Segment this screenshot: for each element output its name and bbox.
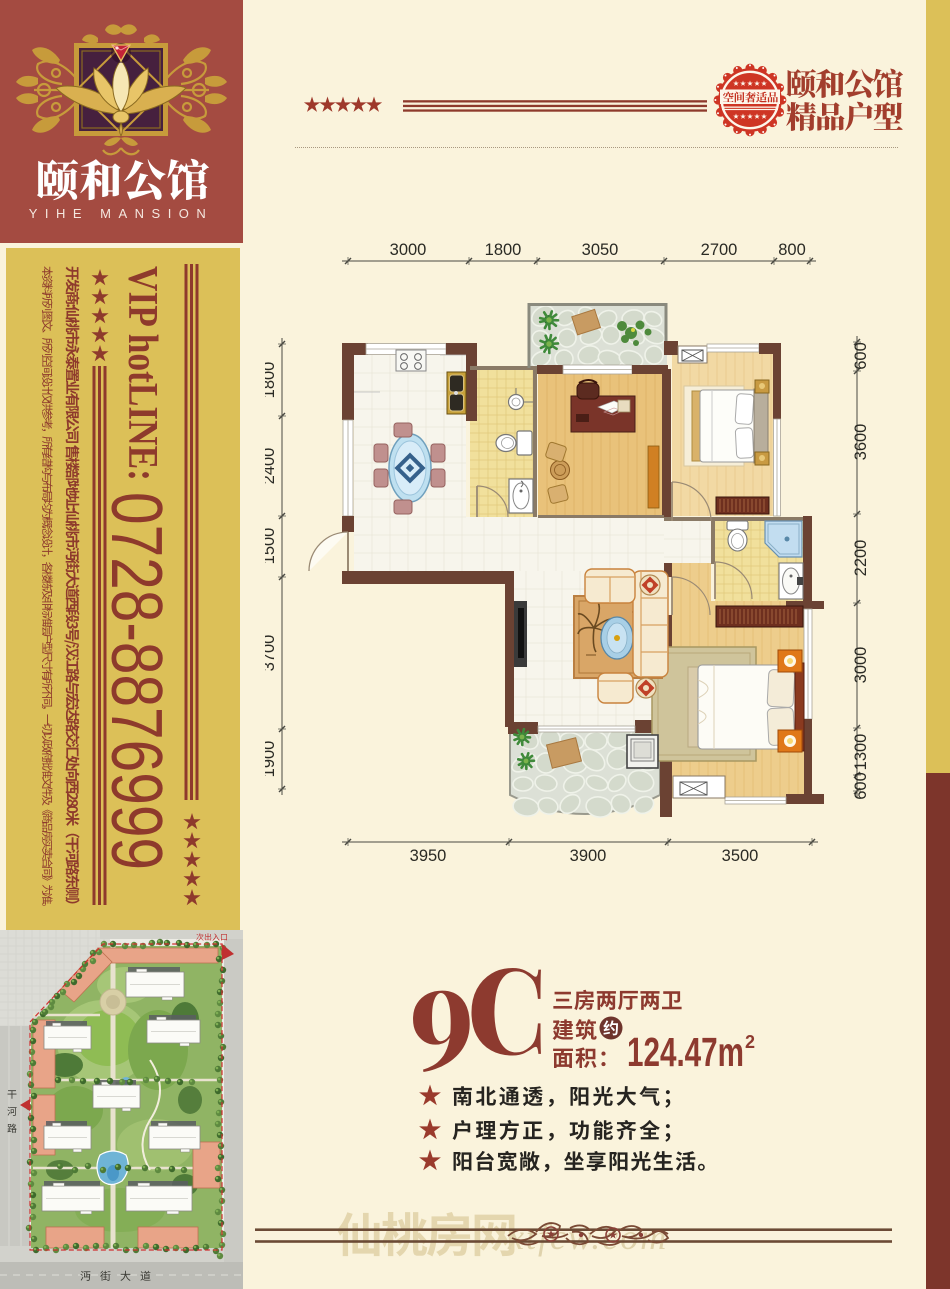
- svg-text:600: 600: [852, 342, 870, 370]
- svg-text:3600: 3600: [852, 424, 870, 461]
- svg-text:3500: 3500: [722, 847, 759, 865]
- svg-text:3900: 3900: [570, 847, 607, 865]
- svg-text:1300: 1300: [852, 734, 870, 771]
- svg-text:3950: 3950: [410, 847, 447, 865]
- svg-text:3700: 3700: [265, 635, 278, 672]
- svg-text:2400: 2400: [265, 448, 278, 485]
- svg-text:124.47m: 124.47m: [627, 1029, 744, 1075]
- svg-text:0728-8876999: 0728-8876999: [96, 492, 176, 870]
- svg-text:YIHE MANSION: YIHE MANSION: [29, 206, 214, 221]
- svg-text:1800: 1800: [485, 241, 522, 259]
- svg-text:2200: 2200: [852, 540, 870, 577]
- svg-text:2700: 2700: [701, 241, 738, 259]
- svg-text:3000: 3000: [852, 647, 870, 684]
- svg-text:2: 2: [745, 1032, 755, 1052]
- svg-text:VIP hotLINE:: VIP hotLINE:: [119, 266, 165, 481]
- svg-text:3050: 3050: [582, 241, 619, 259]
- svg-text:1500: 1500: [265, 528, 278, 565]
- svg-text:1900: 1900: [265, 741, 278, 778]
- svg-text:3000: 3000: [390, 241, 427, 259]
- svg-text:600: 600: [852, 772, 870, 800]
- svg-text:800: 800: [778, 241, 806, 259]
- svg-text:1800: 1800: [265, 362, 278, 399]
